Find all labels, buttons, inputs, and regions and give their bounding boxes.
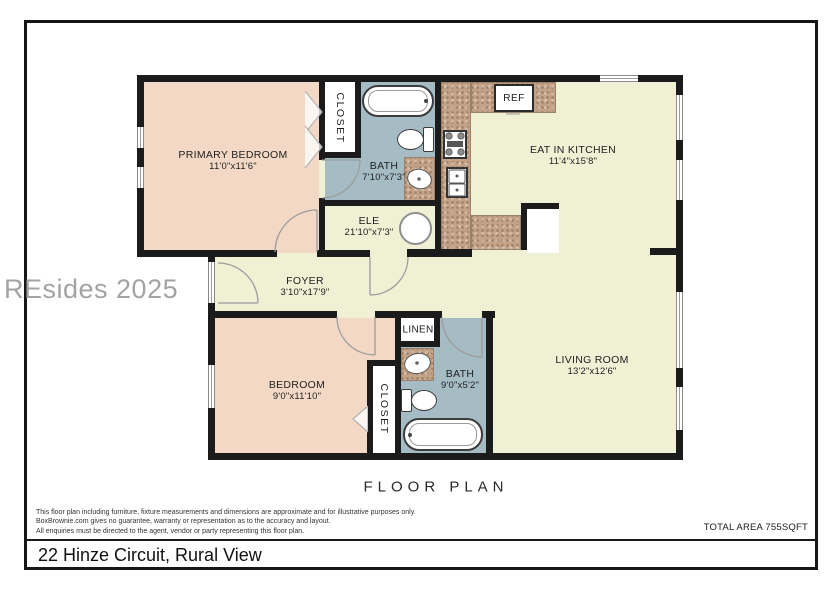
wall	[137, 75, 144, 257]
disclaimer-line: All enquiries must be directed to the ag…	[36, 527, 456, 536]
room-dims: 9'0"x5'2"	[441, 380, 479, 392]
room-label-kitchen: EAT IN KITCHEN 11'4"x15'8"	[530, 144, 616, 168]
wall	[319, 198, 325, 257]
kitchen-sink	[446, 167, 468, 198]
wall	[355, 81, 361, 158]
room-label-closet1: CLOSET	[334, 92, 346, 143]
window	[600, 75, 638, 82]
wall	[367, 360, 373, 460]
wall	[486, 311, 493, 460]
room-dims: 9'0"x11'10"	[269, 391, 325, 403]
wall	[208, 311, 337, 318]
disclaimer-line: This floor plan including furniture, fix…	[36, 508, 456, 517]
room-label-bath2: BATH 9'0"x5'2"	[441, 368, 479, 392]
toilet-2-bowl	[411, 390, 437, 411]
wall	[367, 360, 397, 366]
room-name: LIVING ROOM	[555, 354, 628, 366]
kitchen-counter-left	[441, 82, 471, 250]
wall	[137, 250, 277, 257]
window	[676, 95, 683, 140]
room-label-linen: LINEN	[403, 325, 434, 336]
floor-pantry	[527, 209, 559, 253]
wall	[435, 75, 441, 257]
window	[137, 127, 144, 148]
toilet-1-tank	[423, 127, 434, 152]
room-label-foyer: FOYER 3'10"x17'9"	[280, 275, 329, 299]
wall	[375, 311, 442, 318]
water-heater	[399, 212, 432, 245]
address-bar-divider	[27, 539, 815, 541]
room-label-living: LIVING ROOM 13'2"x12'6"	[555, 354, 628, 378]
wall	[521, 203, 527, 250]
room-name: ELE	[344, 215, 393, 227]
room-dims: 7'10"x7'3"	[362, 172, 406, 184]
address-text: 22 Hinze Circuit, Rural View	[38, 545, 262, 566]
room-label-primary-bedroom: PRIMARY BEDROOM 11'0"x11'6"	[178, 149, 287, 173]
room-name: PRIMARY BEDROOM	[178, 149, 287, 161]
room-dims: 3'10"x17'9"	[280, 287, 329, 299]
wall	[521, 203, 559, 209]
room-label-bedroom2: BEDROOM 9'0"x11'10"	[269, 379, 325, 403]
room-dims: 11'4"x15'8"	[530, 156, 616, 168]
room-dims: 11'0"x11'6"	[178, 161, 287, 173]
room-name: BEDROOM	[269, 379, 325, 391]
room-name: BATH	[441, 368, 479, 380]
ref-label: REF	[503, 93, 525, 104]
room-label-ele: ELE 21'10"x7'3"	[344, 215, 393, 239]
wall	[319, 81, 325, 160]
wall	[650, 248, 683, 255]
window	[676, 387, 683, 430]
kitchen-counter-bottom	[471, 215, 521, 250]
window	[208, 262, 215, 303]
room-name: EAT IN KITCHEN	[530, 144, 616, 156]
window	[137, 167, 144, 188]
wall	[208, 453, 683, 460]
wall	[319, 152, 361, 158]
window	[676, 292, 683, 368]
refrigerator: REF	[494, 84, 534, 112]
room-dims: 13'2"x12'6"	[555, 366, 628, 378]
disclaimer-line: BoxBrownie.com gives no guarantee, warra…	[36, 517, 456, 526]
stove	[443, 130, 467, 159]
watermark: REsides 2025	[4, 274, 178, 305]
room-label-closet2: CLOSET	[378, 383, 390, 434]
room-name: BATH	[362, 160, 406, 172]
window	[208, 365, 215, 408]
wall	[319, 200, 441, 206]
wall	[395, 311, 401, 460]
room-name: FOYER	[280, 275, 329, 287]
bathtub-2-inner	[409, 423, 477, 446]
bathtub-1-inner	[368, 90, 428, 112]
total-area-label: TOTAL AREA 755SQFT	[704, 522, 808, 533]
disclaimer-text: This floor plan including furniture, fix…	[36, 508, 456, 536]
window	[676, 160, 683, 200]
toilet-1-bowl	[397, 129, 424, 150]
room-dims: 21'10"x7'3"	[344, 227, 393, 239]
wall	[399, 341, 440, 347]
plan-heading: FLOOR PLAN	[363, 479, 508, 496]
room-label-bath1: BATH 7'10"x7'3"	[362, 160, 406, 184]
floor-plan-page: REF	[0, 0, 840, 593]
